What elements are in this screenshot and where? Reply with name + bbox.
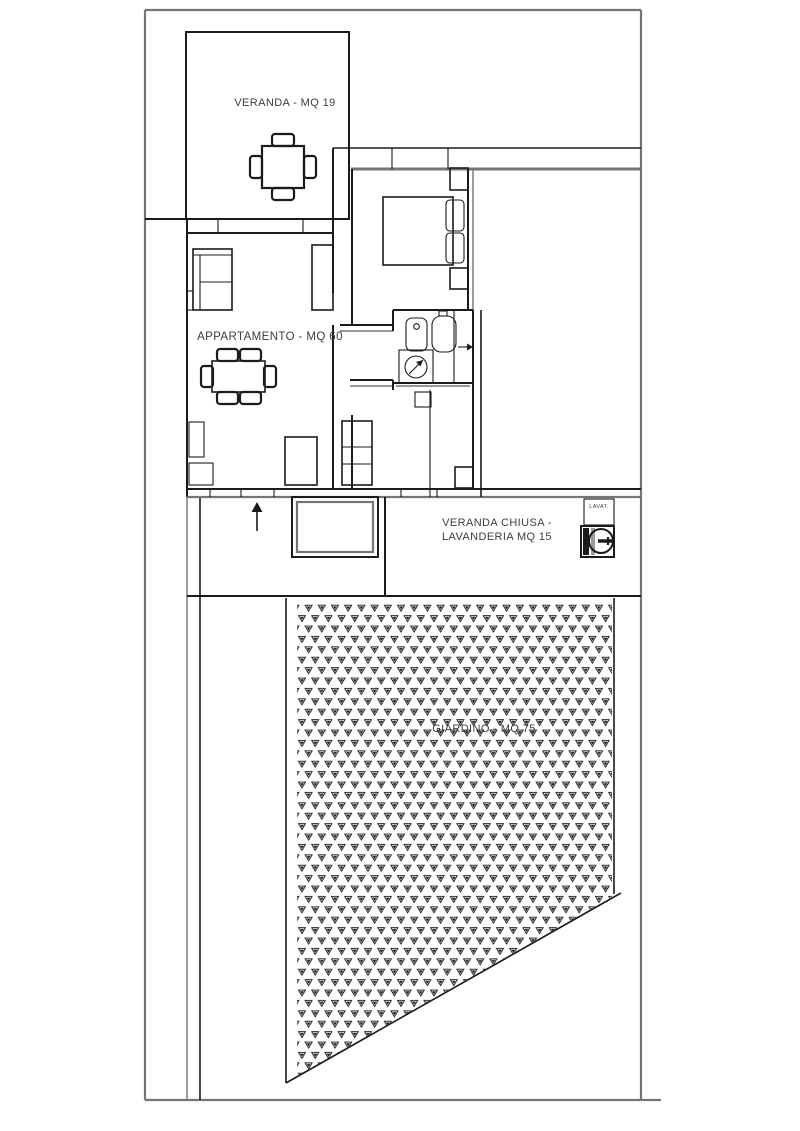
washbasin-icon bbox=[399, 350, 433, 383]
bedroom bbox=[383, 168, 468, 289]
entrance-area bbox=[252, 497, 379, 557]
washer-cabinet: LAVAT. bbox=[584, 499, 614, 525]
side-passage-walls bbox=[187, 497, 200, 1100]
steps-icon bbox=[292, 497, 378, 557]
floor-plan-page: VERANDA - MQ 19 APPARTAMENTO - MQ 60 bbox=[0, 0, 800, 1131]
sofa-icon bbox=[187, 249, 232, 310]
veranda-chiusa-label-line2: LAVANDERIA MQ 15 bbox=[442, 531, 552, 543]
nightstand-icon bbox=[450, 268, 468, 289]
apartment-walls bbox=[187, 148, 641, 497]
washer-cabinet-label: LAVAT. bbox=[589, 504, 609, 510]
outdoor-table-icon bbox=[250, 134, 316, 200]
floor-plan-drawing: VERANDA - MQ 19 APPARTAMENTO - MQ 60 bbox=[0, 0, 800, 1131]
garden-label: GIARDINO - MQ 75 bbox=[432, 723, 536, 735]
veranda-label: VERANDA - MQ 19 bbox=[234, 97, 335, 109]
garden-hatch bbox=[297, 602, 612, 1076]
nightstand-icon bbox=[450, 168, 468, 190]
shower-arrow-icon bbox=[458, 344, 473, 351]
dining-table-icon bbox=[201, 349, 276, 404]
bathroom bbox=[393, 310, 481, 497]
toilet-icon bbox=[432, 311, 456, 352]
entrance-arrow-icon bbox=[252, 502, 263, 531]
veranda-room: VERANDA - MQ 19 bbox=[145, 32, 349, 219]
veranda-chiusa-label-line1: VERANDA CHIUSA - bbox=[442, 517, 552, 529]
wardrobe-icon bbox=[312, 245, 333, 310]
washing-machine-icon bbox=[581, 526, 614, 557]
garden-area: GIARDINO - MQ 75 bbox=[286, 598, 621, 1083]
apartment-label: APPARTAMENTO - MQ 60 bbox=[197, 331, 343, 343]
bed-icon bbox=[383, 197, 464, 265]
bidet-icon bbox=[406, 318, 427, 351]
